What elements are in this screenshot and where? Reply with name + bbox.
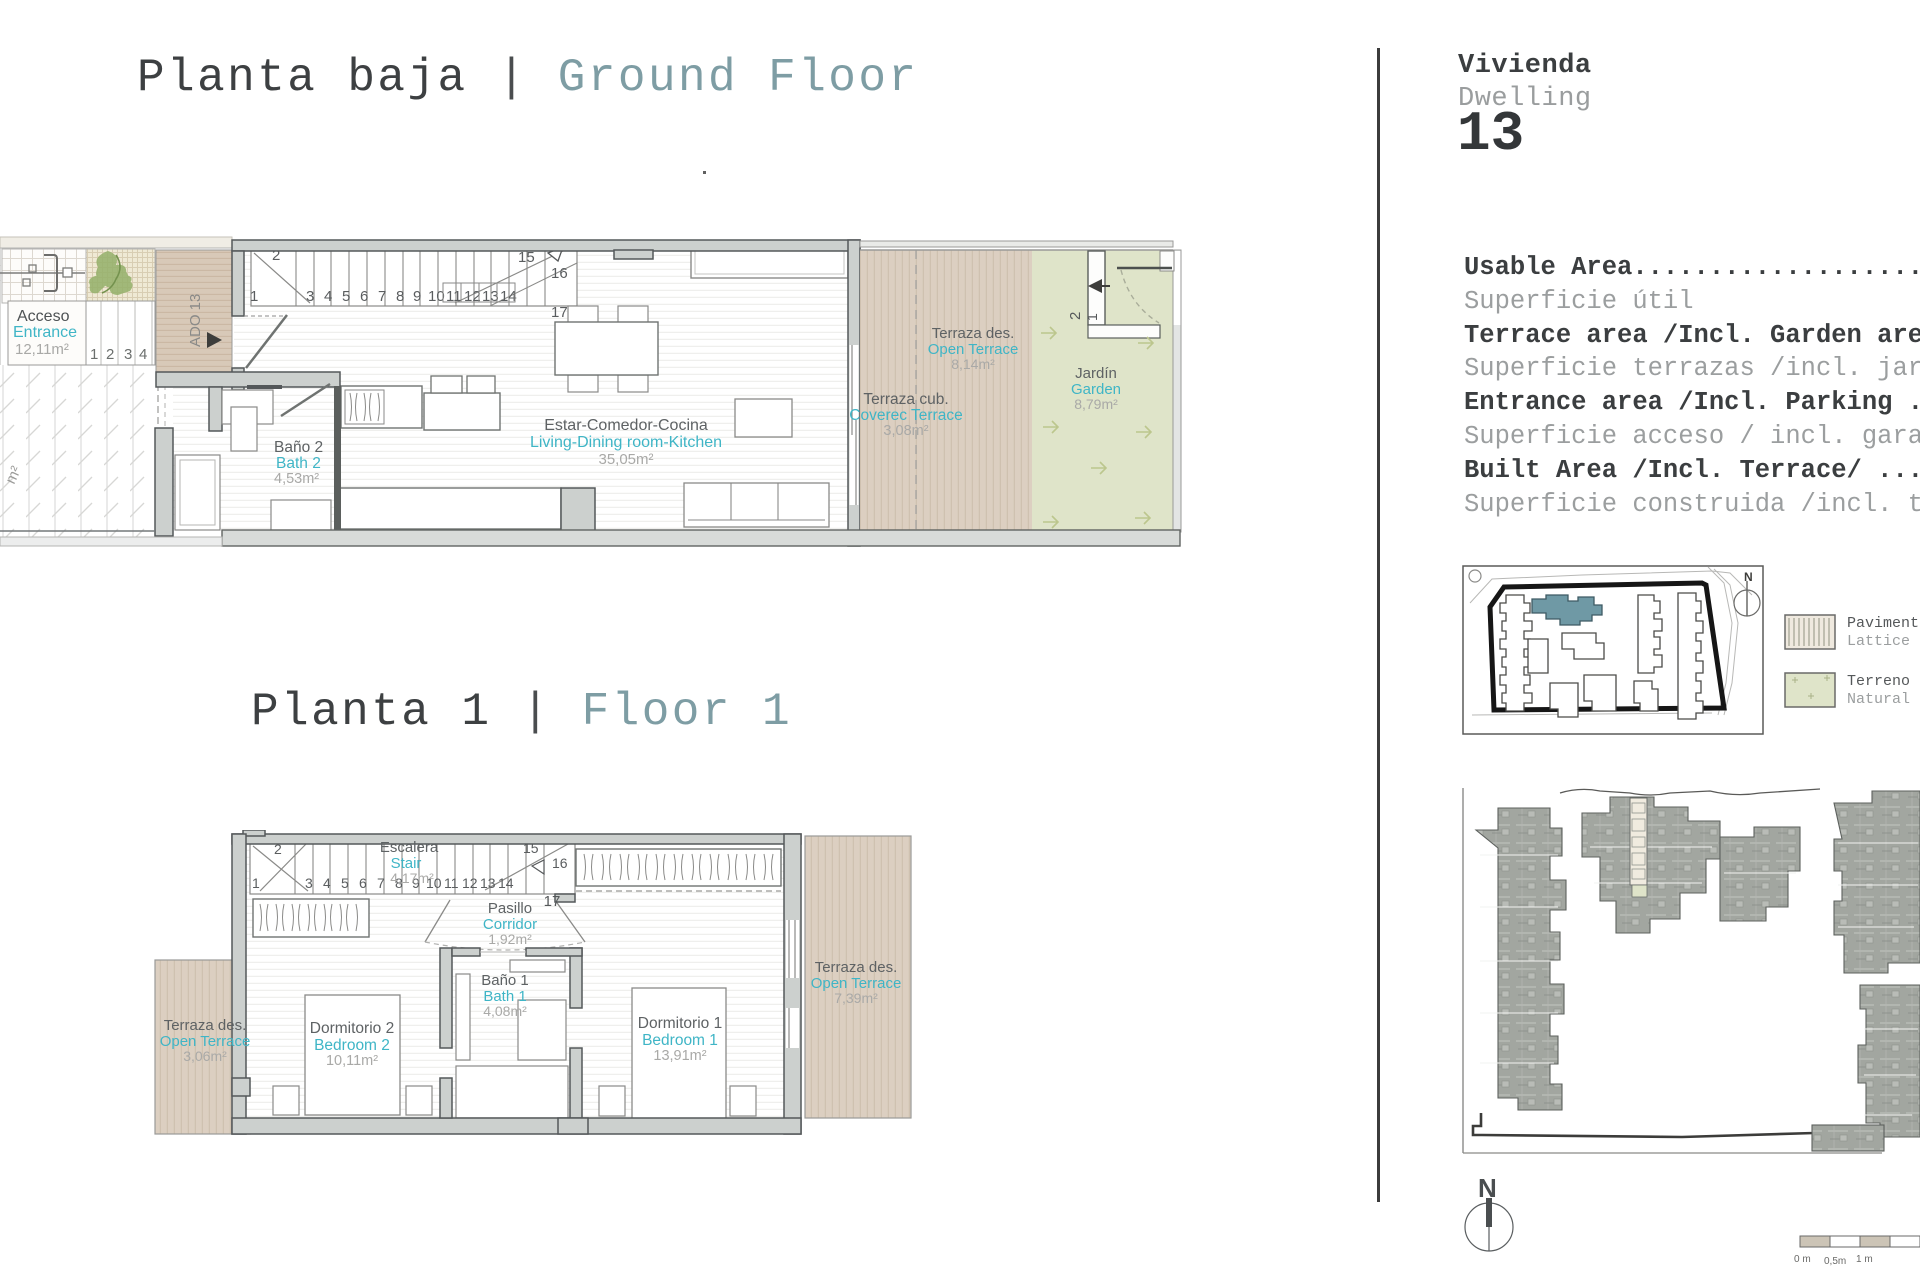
svg-text:Terraza des.: Terraza des.	[932, 325, 1015, 342]
svg-text:16: 16	[551, 265, 568, 282]
svg-text:Coverec Terrace: Coverec Terrace	[849, 407, 962, 424]
svg-text:Pavimento: Pavimento	[1847, 615, 1920, 632]
svg-text:1 m: 1 m	[1856, 1254, 1873, 1265]
svg-text:3: 3	[306, 288, 314, 305]
svg-text:7: 7	[378, 288, 386, 305]
svg-text:Jardín: Jardín	[1075, 365, 1117, 382]
svg-text:4,08m²: 4,08m²	[483, 1003, 527, 1019]
svg-text:N: N	[1744, 570, 1753, 584]
svg-text:16: 16	[552, 855, 568, 871]
svg-text:2: 2	[106, 346, 114, 363]
svg-text:Dormitorio 1: Dormitorio 1	[638, 1015, 722, 1032]
svg-text:0,5m: 0,5m	[1824, 1256, 1846, 1267]
svg-text:35,05m²: 35,05m²	[598, 451, 653, 468]
svg-text:1: 1	[250, 288, 258, 305]
svg-text:Pasillo: Pasillo	[488, 900, 532, 917]
svg-text:Living-Dining room-Kitchen: Living-Dining room-Kitchen	[530, 434, 722, 451]
svg-text:5: 5	[342, 288, 350, 305]
svg-text:4,53m²: 4,53m²	[274, 471, 319, 487]
svg-text:11: 11	[444, 875, 459, 891]
svg-text:4,17m²: 4,17m²	[390, 870, 434, 886]
svg-text:12: 12	[462, 875, 478, 891]
svg-text:Escalera: Escalera	[380, 839, 439, 856]
svg-text:Terraza des.: Terraza des.	[164, 1017, 247, 1034]
svg-text:Natural: Natural	[1847, 691, 1910, 708]
svg-text:1: 1	[1084, 313, 1100, 321]
svg-text:Bath 2: Bath 2	[276, 455, 321, 472]
svg-text:13: 13	[480, 875, 496, 891]
svg-text:Terreno: Terreno	[1847, 673, 1910, 690]
svg-text:6: 6	[359, 875, 367, 891]
svg-text:17: 17	[551, 304, 568, 321]
svg-text:6: 6	[360, 288, 368, 305]
svg-text:1,92m²: 1,92m²	[488, 931, 532, 947]
svg-text:0 m: 0 m	[1794, 1254, 1811, 1265]
svg-text:Acceso: Acceso	[17, 308, 70, 325]
svg-text:10: 10	[428, 288, 445, 305]
svg-text:3,08m²: 3,08m²	[883, 423, 928, 439]
svg-text:13,91m²: 13,91m²	[653, 1048, 706, 1064]
svg-text:Terraza des.: Terraza des.	[815, 959, 898, 976]
svg-text:Baño 1: Baño 1	[481, 972, 529, 989]
svg-text:Baño 2: Baño 2	[274, 439, 323, 456]
svg-text:Terraza cub.: Terraza cub.	[863, 391, 948, 408]
svg-text:Entrance: Entrance	[13, 324, 77, 341]
svg-text:7,39m²: 7,39m²	[834, 990, 878, 1006]
svg-text:Bedroom 2: Bedroom 2	[314, 1037, 390, 1054]
svg-text:8,14m²: 8,14m²	[951, 356, 995, 372]
svg-text:ADO 13: ADO 13	[187, 294, 204, 347]
svg-text:4: 4	[324, 288, 332, 305]
svg-text:1: 1	[90, 346, 98, 363]
svg-text:2: 2	[1067, 312, 1084, 320]
svg-text:12,11m²: 12,11m²	[15, 341, 69, 358]
svg-text:5: 5	[341, 875, 349, 891]
svg-text:Lattice: Lattice	[1847, 633, 1910, 650]
svg-text:8: 8	[396, 288, 404, 305]
svg-text:Bedroom 1: Bedroom 1	[642, 1032, 718, 1049]
svg-text:Dormitorio 2: Dormitorio 2	[310, 1020, 394, 1037]
svg-text:8,79m²: 8,79m²	[1074, 396, 1118, 412]
svg-text:7: 7	[377, 875, 385, 891]
svg-text:10,11m²: 10,11m²	[326, 1053, 378, 1069]
svg-text:17: 17	[544, 893, 561, 910]
svg-text:14: 14	[498, 875, 514, 891]
svg-text:9: 9	[413, 288, 421, 305]
svg-text:4: 4	[139, 346, 147, 363]
svg-text:4: 4	[323, 875, 331, 891]
svg-text:3: 3	[305, 875, 313, 891]
svg-text:1: 1	[252, 875, 260, 891]
svg-text:3: 3	[124, 346, 132, 363]
svg-text:3,06m²: 3,06m²	[183, 1048, 227, 1064]
svg-text:Estar-Comedor-Cocina: Estar-Comedor-Cocina	[544, 417, 708, 434]
